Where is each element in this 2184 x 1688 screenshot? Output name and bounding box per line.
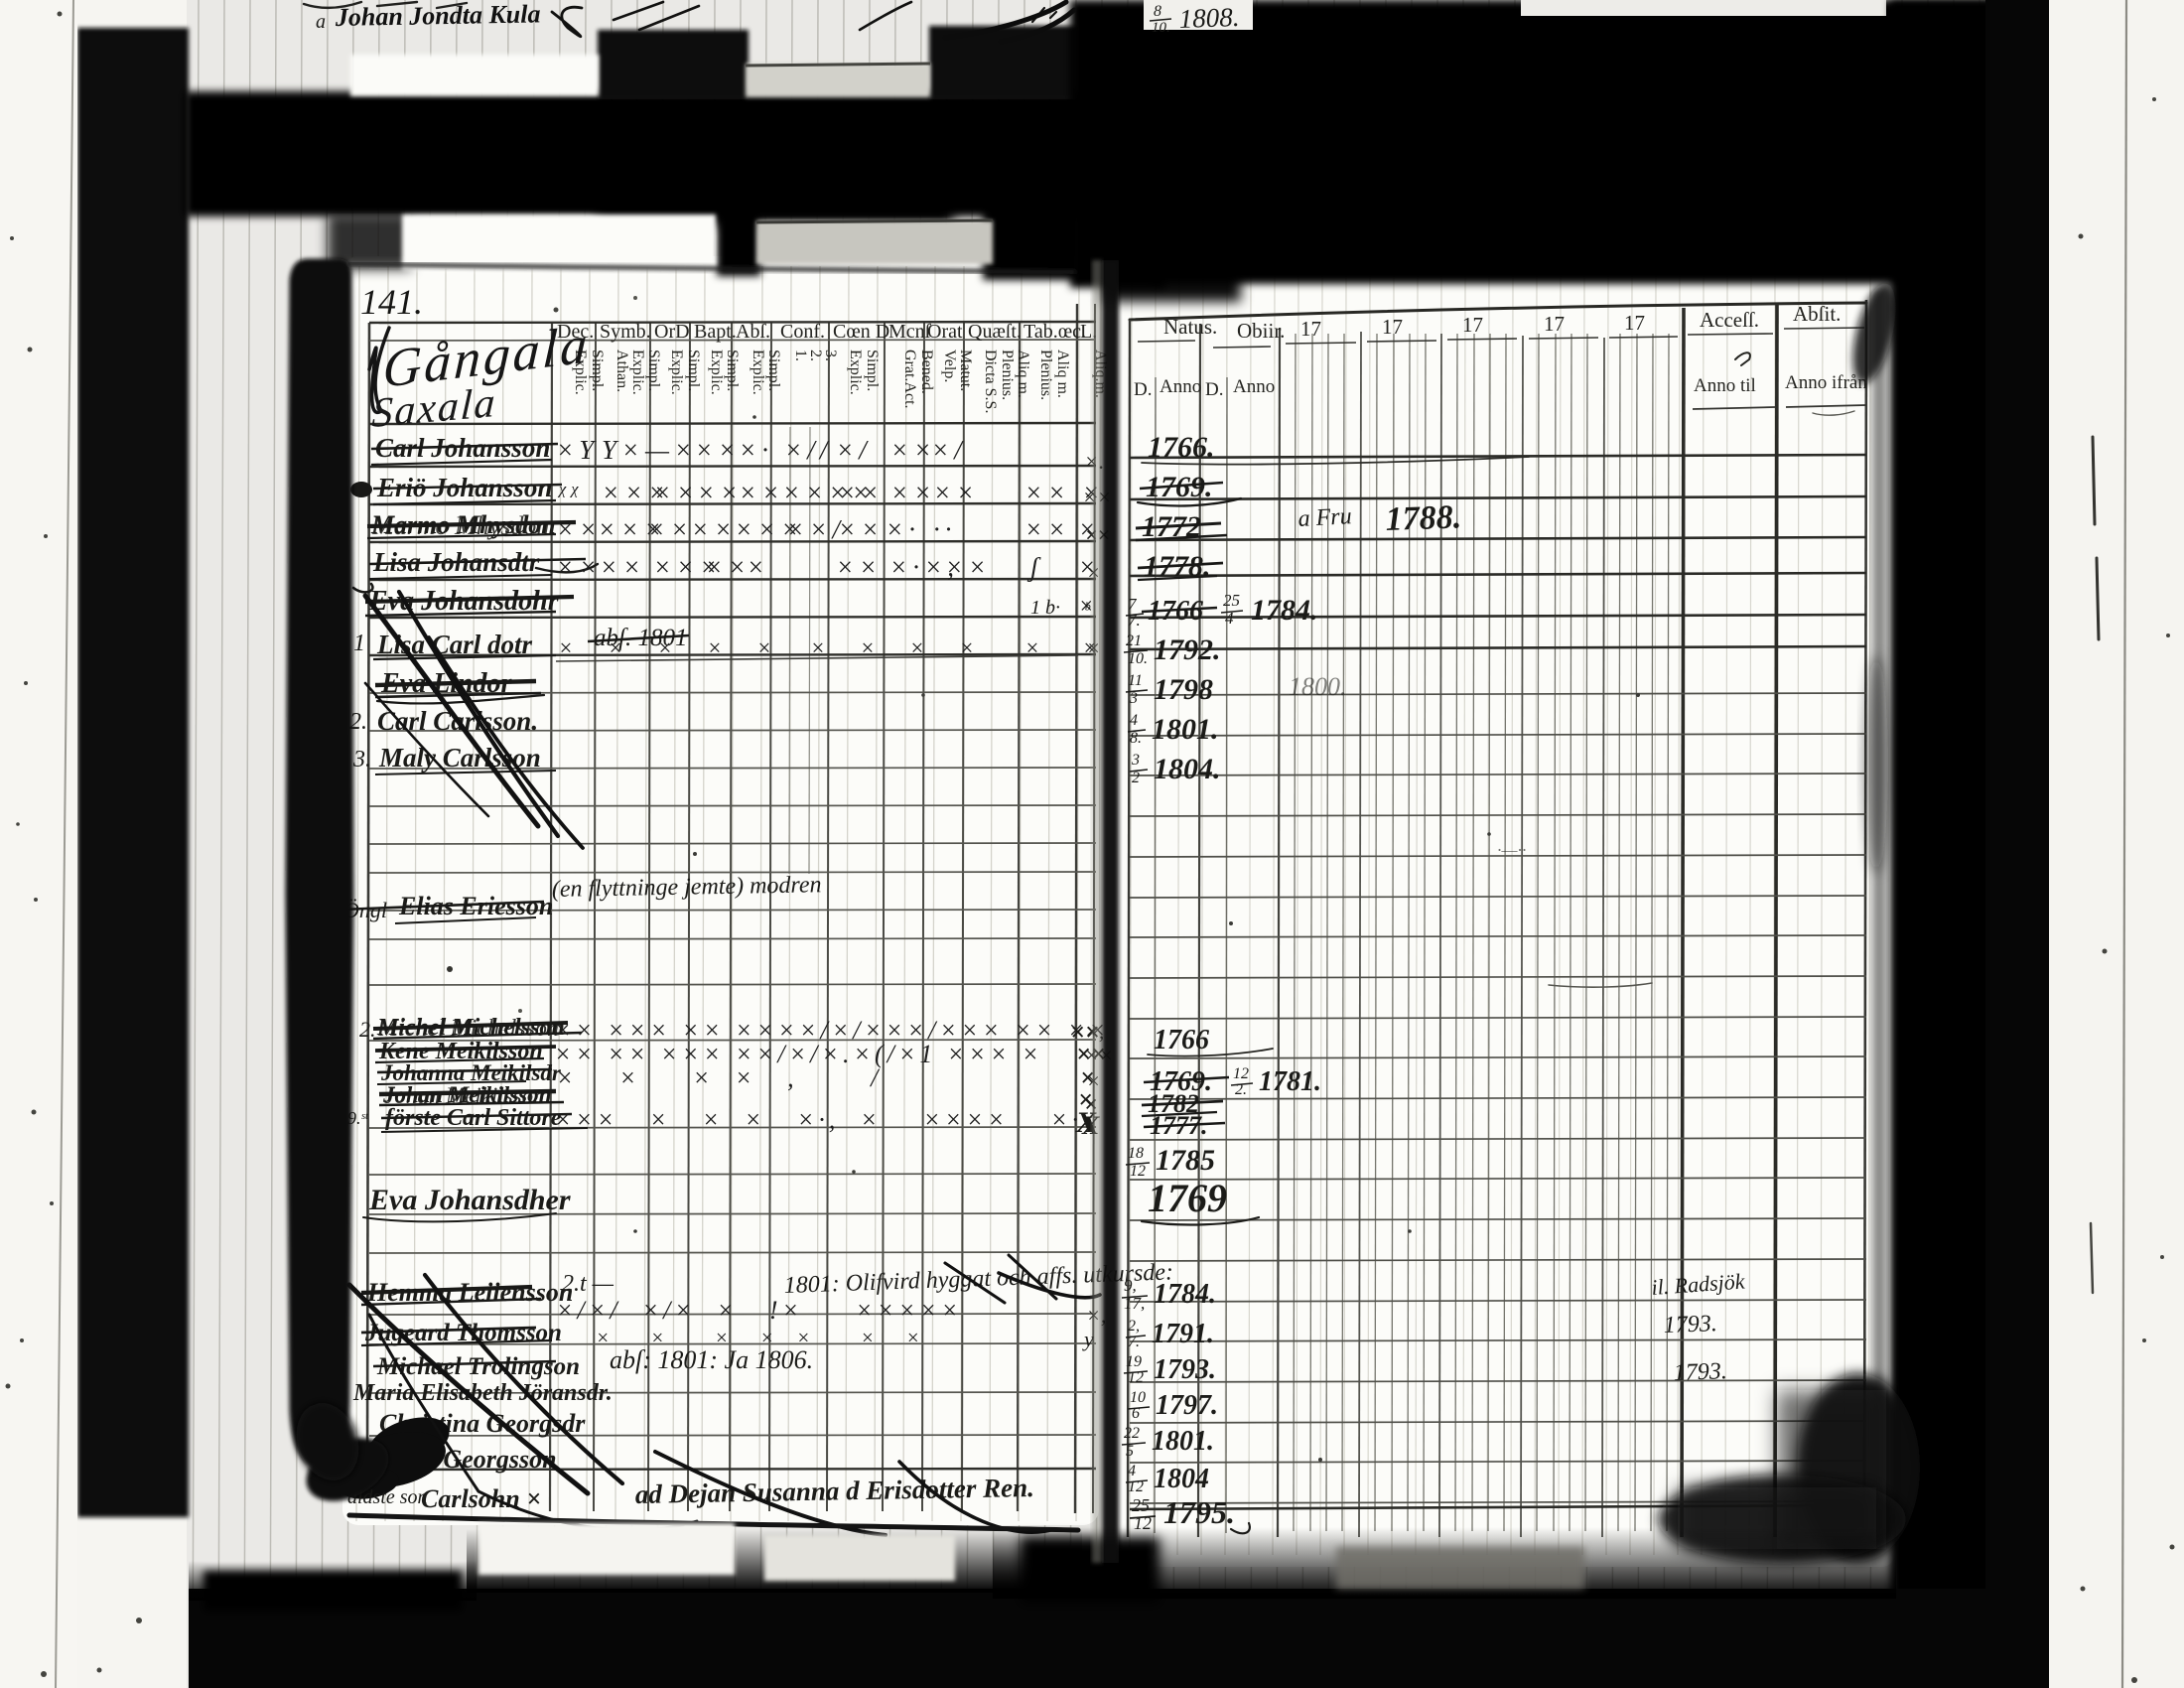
svg-text:××: ××	[890, 478, 936, 507]
svg-text:××: ××	[691, 514, 737, 544]
svg-text:Mcnſ: Mcnſ	[888, 321, 932, 343]
svg-text:1800.: 1800.	[1289, 672, 1347, 701]
svg-text:××/: ××/	[786, 514, 845, 544]
svg-text:××: ××	[705, 552, 751, 582]
svg-text:1801.: 1801.	[1152, 713, 1219, 746]
svg-text:×Y: ×Y	[556, 435, 599, 465]
svg-text:Simpl.: Simpl.	[765, 350, 782, 391]
svg-text:a Fru: a Fru	[1297, 503, 1352, 532]
svg-text:Natus.: Natus.	[1163, 315, 1217, 339]
svg-text:(en flyttninge jemte) modren: (en flyttninge jemte) modren	[552, 872, 822, 903]
svg-text:Eva Johansdher: Eva Johansdher	[368, 1184, 571, 1216]
svg-text:10.: 10.	[1128, 650, 1148, 667]
svg-text:1: 1	[353, 631, 365, 656]
svg-text:141.: 141.	[360, 282, 423, 322]
svg-text:Quæſt.: Quæſt.	[968, 321, 1022, 343]
svg-text:1808.: 1808.	[1178, 2, 1240, 34]
svg-text:3: 3	[1129, 690, 1138, 707]
svg-text:Explic.: Explic.	[750, 350, 766, 395]
svg-text:2,: 2,	[1128, 1318, 1140, 1335]
svg-text:Johan Jondta Kula: Johan Jondta Kula	[335, 0, 541, 32]
svg-text:1793.: 1793.	[1663, 1311, 1717, 1338]
svg-text:1795.: 1795.	[1163, 1494, 1235, 1530]
svg-text:Dicta S.S.: Dicta S.S.	[982, 350, 999, 413]
svg-text:××: ××	[945, 552, 991, 582]
svg-text:Anno: Anno	[1233, 376, 1275, 397]
svg-text:1.: 1.	[792, 350, 809, 361]
svg-text:Anno til: Anno til	[1694, 375, 1756, 396]
svg-text:10.: 10.	[1152, 20, 1170, 36]
svg-text:19: 19	[1126, 1353, 1142, 1370]
svg-text:×: ×	[747, 552, 769, 582]
svg-text:××: ××	[890, 435, 936, 465]
svg-text:Conf.: Conf.	[780, 321, 825, 343]
svg-text:××: ××	[1024, 478, 1070, 507]
svg-text:2: 2	[1132, 770, 1140, 786]
svg-text:×/: ×/	[931, 435, 967, 465]
svg-text:a: a	[316, 11, 326, 33]
svg-text:Plenius.: Plenius.	[999, 350, 1016, 400]
svg-text:××: ××	[739, 478, 784, 507]
svg-text:Aliq m.: Aliq m.	[1015, 350, 1031, 398]
svg-text:12: 12	[1130, 1163, 1146, 1180]
svg-text:25: 25	[1223, 591, 1240, 610]
svg-text:Abſ.: Abſ.	[736, 321, 770, 343]
svg-text:Simpl.: Simpl.	[645, 350, 662, 391]
svg-text:1788.: 1788.	[1385, 498, 1462, 538]
svg-text:1804: 1804	[1154, 1464, 1209, 1494]
svg-text:OrD: OrD	[654, 321, 690, 343]
svg-text:Simpl.: Simpl.	[724, 350, 741, 391]
svg-text:Aliq m.: Aliq m.	[1054, 350, 1071, 398]
svg-text:25: 25	[1132, 1495, 1150, 1515]
svg-text:××: ××	[600, 552, 645, 582]
svg-text:3.: 3.	[822, 350, 839, 361]
svg-text:××: ××	[1024, 514, 1070, 544]
svg-text:abſ: 1801: Ja 1806.: abſ: 1801: Ja 1806.	[610, 1345, 813, 1374]
svg-text:Symb.: Symb.	[600, 321, 651, 343]
svg-text:Simpl.: Simpl.	[685, 350, 702, 391]
svg-text:Simpl.: Simpl.	[589, 350, 606, 391]
svg-text:3: 3	[1131, 752, 1140, 769]
svg-text:1766: 1766	[1154, 1025, 1209, 1055]
svg-text:1792.: 1792.	[1154, 633, 1221, 666]
svg-text:4: 4	[1130, 712, 1138, 729]
svg-text:×/×/ ×/× × !× ×××××: ×/×/ ×/× × !× ×××××	[556, 1296, 962, 1325]
svg-text:Explic.: Explic.	[668, 350, 685, 395]
svg-text:Bapt.: Bapt.	[694, 321, 737, 343]
svg-text:3.: 3.	[352, 747, 371, 773]
svg-text:××: ××	[836, 552, 882, 582]
svg-text:Acceſſ.: Acceſſ.	[1700, 308, 1759, 332]
svg-text:Anno: Anno	[1160, 376, 1201, 397]
svg-text:×: ×	[860, 635, 876, 660]
svg-text:×: ×	[608, 635, 623, 660]
svg-text:1793.: 1793.	[1154, 1354, 1216, 1385]
svg-text:×·: ×·	[739, 435, 773, 465]
svg-text:21: 21	[1126, 633, 1142, 649]
svg-text:22: 22	[1124, 1425, 1140, 1442]
svg-text:17: 17	[1300, 317, 1321, 341]
svg-text:18: 18	[1128, 1145, 1144, 1162]
svg-text:×: ×	[810, 635, 826, 660]
svg-text:D.: D.	[1134, 379, 1152, 400]
svg-text:××: ××	[697, 478, 743, 507]
svg-text:—×: —×	[644, 435, 697, 465]
svg-text:17: 17	[1544, 312, 1565, 336]
svg-text:Athan.: Athan.	[614, 350, 630, 392]
svg-text:Maria Elisabeth Jöransdr.: Maria Elisabeth Jöransdr.	[352, 1380, 613, 1406]
svg-text:Grat.Act.: Grat.Act.	[901, 350, 918, 409]
svg-text:8: 8	[1154, 3, 1161, 20]
svg-text:Simpl.: Simpl.	[864, 350, 881, 391]
svg-text:1784.: 1784.	[1154, 1279, 1216, 1310]
svg-text:11: 11	[1128, 672, 1143, 689]
svg-text:×: ×	[558, 635, 574, 660]
svg-text:ᵡᵡ: ᵡᵡ	[557, 478, 583, 507]
svg-text:Explic.: Explic.	[847, 350, 864, 395]
svg-text:×: ×	[657, 635, 673, 660]
svg-text:10: 10	[1130, 1389, 1146, 1406]
svg-text:Cœn D: Cœn D	[833, 321, 889, 343]
svg-text:Bened.: Bened.	[918, 350, 935, 394]
svg-text:1766.: 1766.	[1148, 431, 1215, 464]
svg-text:1801.: 1801.	[1152, 1426, 1214, 1457]
svg-text:Obiir.: Obiir.	[1237, 319, 1285, 343]
svg-text:××: ××	[556, 552, 602, 582]
svg-text:×/: ×/	[836, 435, 872, 465]
svg-text:Explic.: Explic.	[629, 350, 646, 395]
svg-text:1785: 1785	[1156, 1144, 1215, 1177]
svg-text:1804.: 1804.	[1154, 753, 1221, 785]
svg-text:Orat: Orat	[927, 321, 963, 343]
svg-text:12: 12	[1233, 1065, 1249, 1082]
svg-text:Matut.: Matut.	[957, 350, 974, 391]
svg-text:Y×: Y×	[602, 435, 644, 465]
svg-text:1797.: 1797.	[1156, 1390, 1218, 1421]
svg-text:××: ××	[647, 514, 693, 544]
svg-text:×·: ×·	[886, 514, 920, 544]
svg-text:1791.: 1791.	[1152, 1319, 1214, 1349]
svg-text:1784.: 1784.	[1251, 594, 1318, 627]
svg-text:··: ··	[933, 514, 957, 544]
svg-text:17: 17	[1382, 315, 1403, 339]
svg-text:××: ××	[653, 478, 699, 507]
svg-text:××: ××	[933, 478, 979, 507]
svg-text:2.: 2.	[807, 350, 824, 361]
svg-text:8.: 8.	[1130, 730, 1142, 747]
svg-text:Tab.œc.: Tab.œc.	[1024, 321, 1086, 343]
svg-text:·—··: ·—··	[1497, 840, 1527, 860]
svg-text:4: 4	[1128, 1463, 1136, 1479]
svg-text:5: 5	[1126, 1443, 1134, 1460]
svg-text:Explic.: Explic.	[708, 350, 725, 395]
svg-text:1798: 1798	[1154, 673, 1213, 706]
svg-text:1 b·: 1 b·	[1030, 597, 1060, 619]
svg-text:Plenius.: Plenius.	[1037, 350, 1054, 400]
svg-text:Velp.: Velp.	[941, 350, 958, 382]
svg-text:17: 17	[1624, 311, 1645, 335]
svg-text:×//: ×//	[784, 435, 832, 465]
svg-text:× × × × , /: × × × × , /	[556, 1063, 882, 1092]
svg-text:1781.: 1781.	[1259, 1066, 1321, 1097]
svg-text:××: ××	[838, 514, 884, 544]
svg-text:1793.: 1793.	[1673, 1358, 1727, 1386]
svg-text:Michael Trolingson: Michael Trolingson	[376, 1353, 580, 1380]
svg-text:××: ××	[838, 478, 884, 507]
svg-text:××× × × × ×·, × ×××: ××× × × × ×·, × ×××× ×·	[554, 1105, 1082, 1134]
svg-text:×: ×	[756, 635, 772, 660]
svg-text:××: ××	[556, 514, 602, 544]
svg-text:1769: 1769	[1148, 1176, 1227, 1220]
svg-text:17: 17	[1462, 313, 1483, 337]
svg-text:D.: D.	[1205, 379, 1223, 400]
svg-text:××: ××	[695, 435, 741, 465]
svg-text:9,: 9,	[1124, 1276, 1137, 1295]
svg-text:×: ×	[707, 635, 723, 660]
svg-text:Abſit.: Abſit.	[1793, 302, 1841, 326]
